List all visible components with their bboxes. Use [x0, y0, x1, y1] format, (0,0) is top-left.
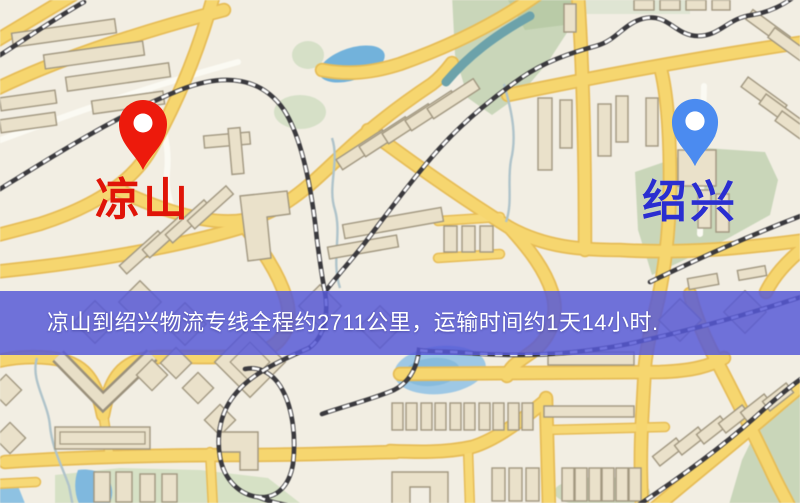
origin-pin-icon: [115, 98, 171, 174]
map-canvas: [0, 0, 800, 503]
map-view: 凉山 绍兴 凉山到绍兴物流专线全程约2711公里，运输时间约1天14小时.: [0, 0, 800, 503]
destination-label: 绍兴: [642, 179, 738, 224]
route-info-banner: 凉山到绍兴物流专线全程约2711公里，运输时间约1天14小时.: [0, 291, 800, 355]
destination-pin-icon: [668, 97, 722, 170]
route-info-text: 凉山到绍兴物流专线全程约2711公里，运输时间约1天14小时.: [47, 291, 800, 355]
origin-marker: [115, 98, 171, 174]
destination-marker: [668, 97, 722, 170]
origin-label: 凉山: [95, 177, 191, 222]
